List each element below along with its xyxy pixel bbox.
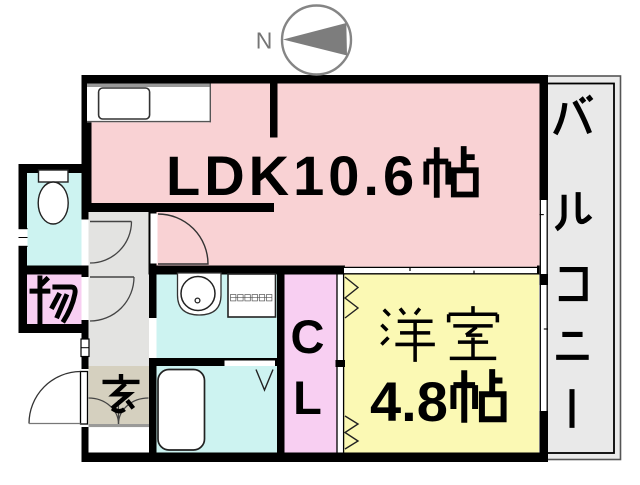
svg-text:L: L [293, 371, 322, 424]
svg-text:C: C [291, 310, 325, 363]
svg-text:LDK10.6: LDK10.6 [166, 144, 418, 207]
svg-text:4.8: 4.8 [370, 370, 448, 433]
svg-text:N: N [256, 28, 273, 54]
